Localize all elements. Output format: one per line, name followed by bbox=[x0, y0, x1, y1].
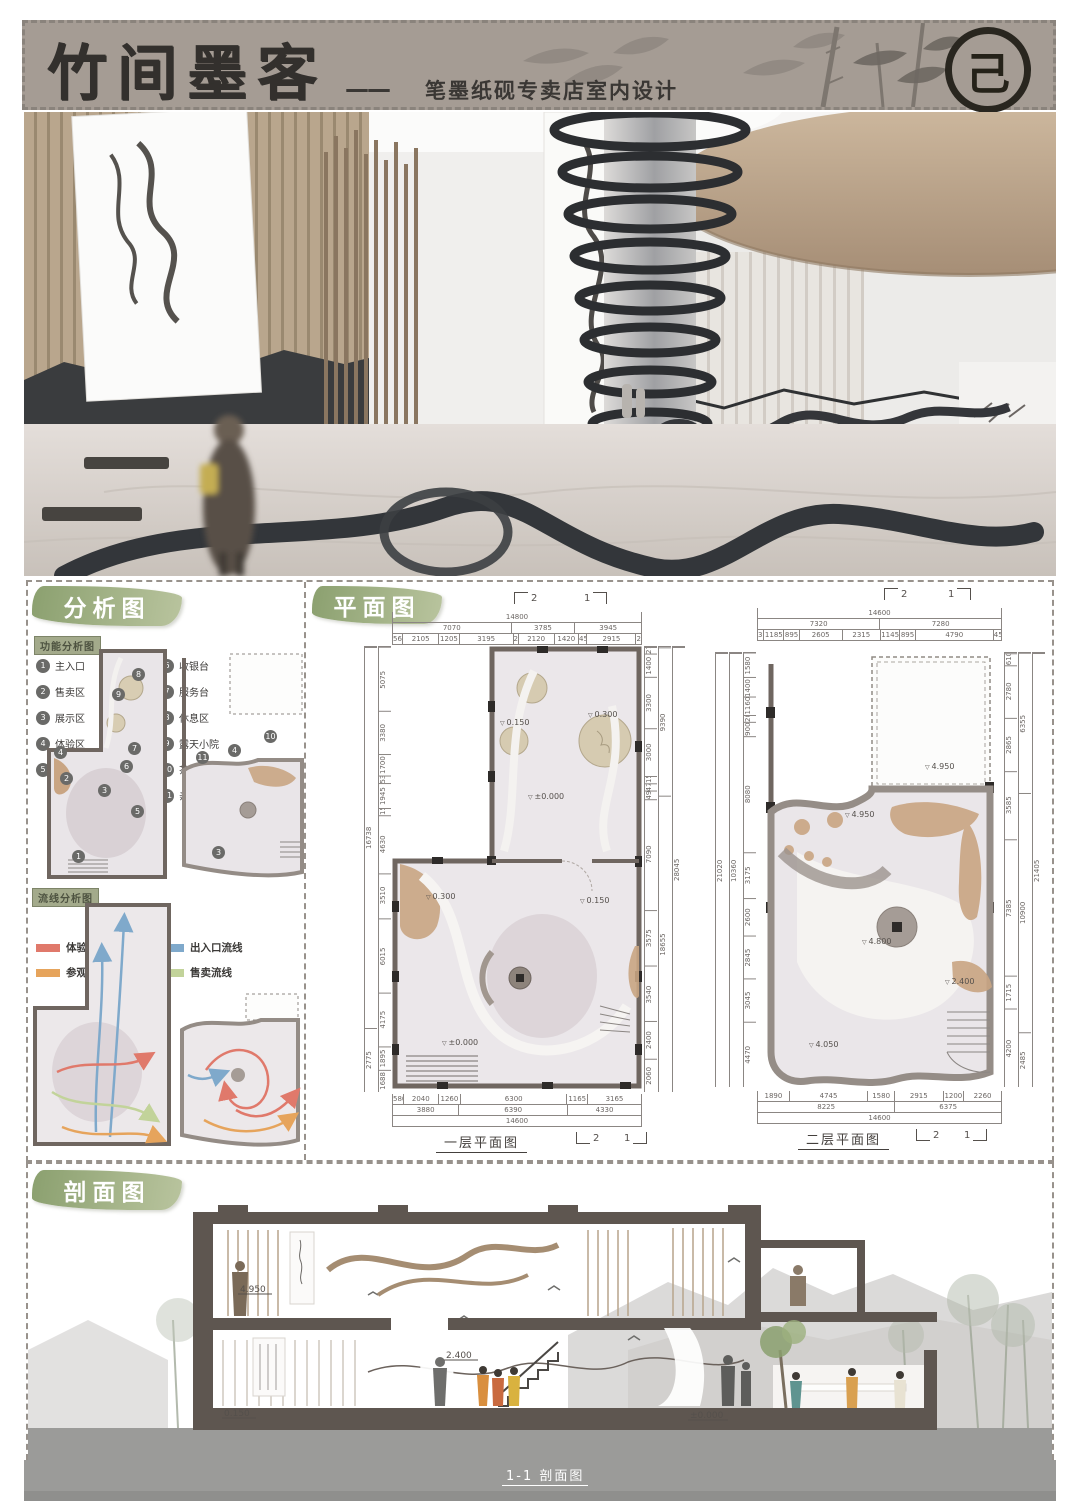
dim-label: 2605 bbox=[800, 630, 843, 640]
footer-strip bbox=[24, 1491, 1056, 1501]
section-cut-mark: 1 bbox=[948, 588, 971, 600]
plan2-right-dim-segs: 610278028653585738517154200 bbox=[1004, 652, 1017, 1087]
plan2-right-dim-total: 21405 bbox=[1032, 652, 1045, 1087]
section-cut-mark: 2 bbox=[576, 1132, 599, 1144]
dim-label: 7385 bbox=[1005, 839, 1017, 976]
dim-label: 1895 bbox=[379, 1046, 391, 1070]
function-analysis-plan-2f: 10 4 11 3 bbox=[178, 650, 306, 878]
dim-label: 9390 bbox=[659, 647, 671, 796]
dim-label: 1945 bbox=[379, 783, 391, 808]
plan-marker: 3 bbox=[98, 784, 111, 797]
plan-marker: 10 bbox=[264, 730, 277, 743]
dim-label: 1205 bbox=[439, 634, 460, 644]
plan2-top-dimensions: 14600 73207280 3301185895260523151145895… bbox=[757, 608, 1002, 641]
dim-label: 7280 bbox=[880, 619, 1002, 629]
calligraphy-banner-left bbox=[72, 112, 262, 401]
dim-label: 475 bbox=[645, 783, 657, 791]
dim-label: 3195 bbox=[460, 634, 514, 644]
ground-band-footer: 1-1 剖面图 bbox=[24, 1460, 1056, 1501]
dim-label: 7090 bbox=[645, 799, 657, 909]
building-section-drawing: 4.950 2.400 0.150 ±0.000 bbox=[28, 1200, 1052, 1460]
plan1-right-dim-groups: 939018655 bbox=[658, 646, 671, 1092]
section-panel: 剖面图 bbox=[26, 1162, 1054, 1460]
dim-label: 450 bbox=[994, 630, 1002, 640]
poster-title: 竹间墨客 bbox=[47, 25, 327, 112]
dim-label: 4745 bbox=[790, 1091, 868, 1101]
dim-label: 275 bbox=[645, 647, 657, 654]
plan1-right-dim-total: 28045 bbox=[672, 646, 685, 1092]
legend-item: 出入口流线 bbox=[160, 940, 243, 955]
poster-subtitle: 笔墨纸砚专卖店室内设计 bbox=[425, 75, 678, 105]
section-caption: 1-1 剖面图 bbox=[502, 1465, 588, 1486]
dim-label: 580 bbox=[393, 1094, 404, 1104]
plan-marker: 8 bbox=[132, 668, 145, 681]
dim-label: 5075 bbox=[379, 647, 391, 711]
plan1-left-dim-segs: 5075338017005301945150463035106015417518… bbox=[378, 646, 391, 1092]
circulation-plan-2f bbox=[176, 990, 304, 1152]
dim-label: 1400 bbox=[645, 654, 657, 677]
dim-label: 2400 bbox=[645, 1021, 657, 1059]
logo-glyph: 己 bbox=[966, 38, 1010, 102]
plan2-left-dim-segs: 1580140011602009008080317526002845304544… bbox=[743, 652, 756, 1087]
plan-marker: 2 bbox=[60, 772, 73, 785]
dim-label: 10360 bbox=[730, 653, 742, 1087]
dim-label: 1580 bbox=[744, 653, 756, 677]
dim-label: 3000 bbox=[645, 728, 657, 775]
dim-label: 1160 bbox=[744, 697, 756, 715]
circulation-plan-1f bbox=[32, 902, 172, 1147]
dim-label: 2105 bbox=[403, 634, 439, 644]
dim-label: 3880 bbox=[393, 1105, 459, 1115]
dim-label: 28045 bbox=[673, 647, 685, 1092]
plan1-caption: 一层平面图 bbox=[436, 1132, 527, 1153]
elevation-label: 0.300 bbox=[588, 710, 617, 719]
dim-label: 4790 bbox=[916, 630, 994, 640]
dim-label: 2120 bbox=[519, 634, 555, 644]
dim-label: 2865 bbox=[1005, 718, 1017, 772]
cut-mark-icon bbox=[514, 592, 528, 604]
section-cut-mark: 1 bbox=[584, 592, 607, 604]
dim-label: 1200 bbox=[944, 1091, 965, 1101]
dim-label: 6355 bbox=[1019, 653, 1031, 793]
dim-label: 1420 bbox=[555, 634, 579, 644]
dim-label: 4630 bbox=[379, 815, 391, 873]
circulation-legend-col2: 出入口流线售卖流线 bbox=[160, 940, 243, 990]
interior-render bbox=[24, 112, 1056, 576]
stairs-section bbox=[498, 1342, 558, 1406]
dim-label: 14800 bbox=[393, 612, 642, 622]
analysis-section-label: 分析图 bbox=[32, 586, 182, 626]
presentation-board: 竹间墨客 —— 笔墨纸砚专卖店室内设计 己 bbox=[0, 0, 1080, 1501]
dim-label: 16738 bbox=[365, 647, 377, 1028]
dim-label: 3380 bbox=[379, 711, 391, 754]
elevation-label: 4.050 bbox=[809, 1040, 838, 1049]
elevation-label: ±0.000 bbox=[528, 792, 564, 801]
dim-label: 10900 bbox=[1019, 793, 1031, 1032]
plan2-right-dim-groups: 6355109002485 bbox=[1018, 652, 1031, 1087]
dim-label: 4175 bbox=[379, 993, 391, 1046]
plan1-left-dim-groups: 167382775 bbox=[364, 646, 377, 1092]
dim-label: 1890 bbox=[758, 1091, 790, 1101]
header-band: 竹间墨客 —— 笔墨纸砚专卖店室内设计 己 bbox=[22, 20, 1056, 110]
function-analysis-plan-1f: 8 9 4 7 6 2 3 5 1 bbox=[46, 648, 168, 880]
plan-marker: 5 bbox=[131, 805, 144, 818]
dim-label: 6390 bbox=[459, 1105, 568, 1115]
plan-marker: 6 bbox=[120, 760, 133, 773]
dim-label: 895 bbox=[784, 630, 799, 640]
cut-mark-icon bbox=[633, 1132, 647, 1144]
elevation-label: 0.150 bbox=[500, 718, 529, 727]
plan2-left-dim-total: 21020 bbox=[715, 652, 728, 1087]
plan2-bottom-dimensions: 189047451580291512002260 82256375 14600 bbox=[757, 1091, 1002, 1124]
dim-label: 1700 bbox=[379, 754, 391, 776]
dim-label: 1400 bbox=[744, 677, 756, 698]
section-cut-mark: 2 bbox=[916, 1129, 939, 1141]
cut-mark-icon bbox=[576, 1132, 590, 1144]
dim-label: 21020 bbox=[716, 653, 728, 1087]
elevation-label: ±0.000 bbox=[442, 1038, 478, 1047]
section-cut-mark: 2 bbox=[884, 588, 907, 600]
central-column-plan bbox=[892, 922, 902, 932]
dim-label: 2485 bbox=[1019, 1032, 1031, 1087]
dim-label: 14600 bbox=[393, 1116, 642, 1126]
dim-label: 2915 bbox=[587, 634, 636, 644]
dim-label: 895 bbox=[900, 630, 915, 640]
cut-mark-icon bbox=[973, 1129, 987, 1141]
dim-label: 275 bbox=[636, 634, 642, 644]
dim-label: 7070 bbox=[393, 623, 512, 633]
dim-label: 2775 bbox=[365, 1028, 377, 1092]
dim-label: 4330 bbox=[568, 1105, 642, 1115]
central-column-plan bbox=[516, 974, 524, 982]
dim-label: 3165 bbox=[588, 1094, 642, 1104]
dim-label: 2315 bbox=[843, 630, 881, 640]
dim-label: 1580 bbox=[868, 1091, 895, 1101]
elevation-label: 0.300 bbox=[426, 892, 455, 901]
dim-label: 1715 bbox=[1005, 976, 1017, 1009]
dim-label: 8080 bbox=[744, 736, 756, 852]
elevation-label: 4.950 bbox=[845, 810, 874, 819]
dim-label: 1260 bbox=[439, 1094, 461, 1104]
dim-label: 565 bbox=[393, 634, 403, 644]
dim-label: 3175 bbox=[744, 852, 756, 898]
plan2-caption: 二层平面图 bbox=[798, 1129, 889, 1150]
plan-marker: 9 bbox=[112, 688, 125, 701]
plan-marker: 1 bbox=[72, 850, 85, 863]
floor-plan-1f: 0.150 0.300 ±0.000 0.300 0.150 ±0.000 bbox=[392, 646, 642, 1092]
plan-marker: 3 bbox=[212, 846, 225, 859]
plan1-bottom-dimensions: 58020401260630011653165 388063904330 146… bbox=[392, 1094, 642, 1127]
dim-label: 7320 bbox=[758, 619, 880, 629]
dim-label: 14600 bbox=[758, 608, 1002, 618]
dim-label: 2040 bbox=[404, 1094, 439, 1104]
dim-label: 3540 bbox=[645, 966, 657, 1022]
dim-label: 3300 bbox=[645, 677, 657, 729]
cut-mark-icon bbox=[884, 588, 898, 600]
dim-label: 21405 bbox=[1033, 653, 1045, 1087]
plan1-right-dim-segs: 2751400330030001504754907090357535402400… bbox=[644, 646, 657, 1092]
dim-label: 18655 bbox=[659, 796, 671, 1092]
dim-label: 2260 bbox=[964, 1091, 1002, 1101]
dim-label: 2915 bbox=[895, 1091, 944, 1101]
dim-label: 8225 bbox=[758, 1102, 895, 1112]
cut-mark-icon bbox=[916, 1129, 930, 1141]
dim-label: 150 bbox=[645, 776, 657, 783]
dim-label: 900 bbox=[744, 722, 756, 736]
plan2-left-dim-groups: 10360 bbox=[729, 652, 742, 1087]
dim-label: 1145 bbox=[881, 630, 900, 640]
ground-band bbox=[28, 1428, 1052, 1460]
dim-label: 4200 bbox=[1005, 1009, 1017, 1088]
legend-item: 售卖流线 bbox=[160, 965, 243, 980]
dim-label: 4470 bbox=[744, 1022, 756, 1087]
colorful-figures bbox=[477, 1366, 520, 1406]
dim-label: 2845 bbox=[744, 936, 756, 978]
floor-plan-2f: 4.950 4.950 4.800 2.400 4.050 bbox=[757, 652, 1002, 1087]
cut-mark-icon bbox=[593, 592, 607, 604]
dim-label: 2060 bbox=[645, 1059, 657, 1092]
dim-label: 2780 bbox=[1005, 665, 1017, 717]
dim-label: 14600 bbox=[758, 1113, 1002, 1123]
dim-label: 6300 bbox=[461, 1094, 568, 1104]
elevation-label: 4.800 bbox=[862, 937, 891, 946]
middle-panel: 分析图 功能分析图 1主入口2售卖区3展示区4体验区5储藏室 6收银台7服务台8… bbox=[26, 580, 1054, 1162]
dim-label: 1688 bbox=[379, 1070, 391, 1092]
plan-marker: 4 bbox=[54, 746, 67, 759]
elevation-label: 4.950 bbox=[925, 762, 954, 771]
plan-marker: 11 bbox=[196, 751, 209, 764]
elevation-label: 2.400 bbox=[945, 977, 974, 986]
cut-mark-icon bbox=[957, 588, 971, 600]
dim-label: 3045 bbox=[744, 978, 756, 1022]
dim-label: 6015 bbox=[379, 918, 391, 993]
dim-label: 1165 bbox=[567, 1094, 588, 1104]
plan-marker: 4 bbox=[228, 744, 241, 757]
dim-label: 3785 bbox=[512, 623, 576, 633]
dim-label: 530 bbox=[379, 776, 391, 784]
dim-label: 3510 bbox=[379, 873, 391, 917]
dim-label: 200 bbox=[744, 715, 756, 722]
section-cut-mark: 1 bbox=[624, 1132, 647, 1144]
section-cut-mark: 1 bbox=[964, 1129, 987, 1141]
dim-label: 2600 bbox=[744, 898, 756, 936]
dim-label: 3945 bbox=[575, 623, 642, 633]
elevation-label: 0.150 bbox=[580, 896, 609, 905]
dim-label: 1185 bbox=[764, 630, 784, 640]
dim-label: 3585 bbox=[1005, 771, 1017, 838]
marble-floor bbox=[24, 424, 1056, 576]
dim-label: 6375 bbox=[895, 1102, 1002, 1112]
dim-label: 610 bbox=[1005, 653, 1017, 665]
dim-label: 3575 bbox=[645, 910, 657, 966]
plan1-top-dimensions: 14800 707037853945 565210512053195250212… bbox=[392, 612, 642, 645]
dim-label: 450 bbox=[579, 634, 587, 644]
section-cut-mark: 2 bbox=[514, 592, 537, 604]
plan-marker: 7 bbox=[128, 742, 141, 755]
title-dash: —— bbox=[345, 75, 389, 103]
